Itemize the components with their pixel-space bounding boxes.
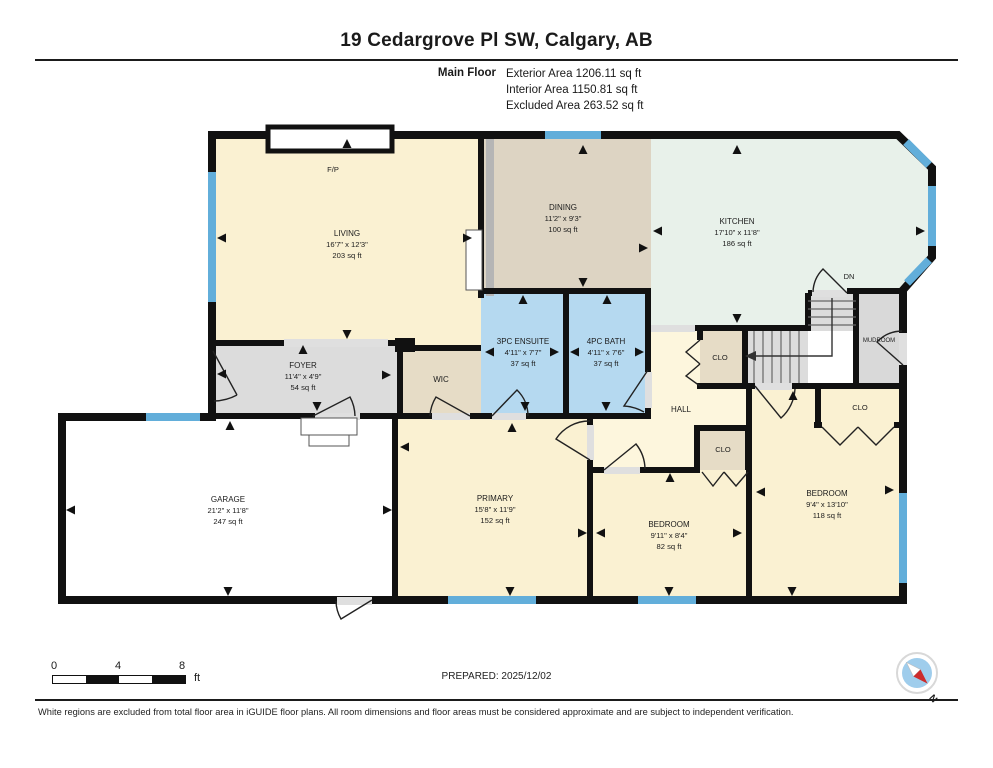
bedroom3-window — [899, 493, 907, 583]
foyer-area: 54 sq ft — [291, 383, 317, 392]
dining-window — [545, 131, 601, 139]
porch-step-1 — [301, 418, 357, 435]
dining-label: DINING — [549, 203, 577, 212]
living-label: LIVING — [334, 229, 360, 238]
fireplace — [268, 127, 392, 151]
porch-step-2 — [309, 435, 349, 446]
closet-bedroom3-label: CLO — [852, 403, 868, 412]
bedroom3-area: 118 sq ft — [813, 511, 842, 520]
closet-bedroom2-label: CLO — [715, 445, 731, 454]
garage-label: GARAGE — [211, 495, 245, 504]
bedroom2-window — [638, 596, 696, 604]
garage-dims: 21'2" x 11'8" — [207, 506, 248, 515]
kitchen-bay-window-mid — [928, 186, 936, 246]
bath-area: 37 sq ft — [594, 359, 620, 368]
fireplace-label: F/P — [327, 165, 339, 174]
wic-label: WIC — [433, 375, 449, 384]
living-window — [208, 172, 216, 302]
primary-label: PRIMARY — [477, 494, 514, 503]
hall-label: HALL — [671, 405, 692, 414]
kitchen-dims: 17'10" x 11'8" — [714, 228, 760, 237]
primary-window — [448, 596, 536, 604]
garage-area: 247 sq ft — [213, 517, 243, 526]
ensuite-dims: 4'11" x 7'7" — [505, 348, 542, 357]
kitchen-label: KITCHEN — [719, 217, 754, 226]
dining-area: 100 sq ft — [548, 225, 578, 234]
stairs-down-label: DN — [844, 272, 855, 281]
living-area: 203 sq ft — [332, 251, 362, 260]
bath-dims: 4'11" x 7'6" — [588, 348, 625, 357]
prepared-date: PREPARED: 2025/12/02 — [0, 671, 993, 682]
footer-divider — [35, 699, 958, 701]
primary-area: 152 sq ft — [480, 516, 510, 525]
bedroom2-area: 82 sq ft — [657, 542, 683, 551]
bedroom3-dims: 9'4" x 13'10" — [806, 500, 848, 509]
disclaimer-text: White regions are excluded from total fl… — [38, 707, 958, 717]
garage-window — [146, 413, 200, 421]
bath-label: 4PC BATH — [587, 337, 626, 346]
foyer-label: FOYER — [289, 361, 317, 370]
bedroom3-label: BEDROOM — [806, 489, 848, 498]
primary-dims: 15'8" x 11'9" — [474, 505, 515, 514]
mudroom-label: MUDROOM — [863, 338, 895, 344]
floorplan-svg: LIVING 16'7" x 12'3" 203 sq ft F/P DININ… — [0, 0, 993, 768]
kitchen-area: 186 sq ft — [722, 239, 752, 248]
bedroom2-dims: 9'11" x 8'4" — [651, 531, 688, 540]
wic-wall-block — [395, 338, 415, 352]
room-dining-floor — [481, 135, 651, 291]
ensuite-area: 37 sq ft — [511, 359, 537, 368]
dining-cabinet-strip — [486, 138, 494, 296]
closet-stairs-label: CLO — [712, 353, 728, 362]
bedroom2-label: BEDROOM — [648, 520, 690, 529]
living-dims: 16'7" x 12'3" — [326, 240, 368, 249]
dining-dims: 11'2" x 9'3" — [545, 214, 582, 223]
ensuite-label: 3PC ENSUITE — [497, 337, 549, 346]
foyer-dims: 11'4" x 4'9" — [285, 372, 322, 381]
